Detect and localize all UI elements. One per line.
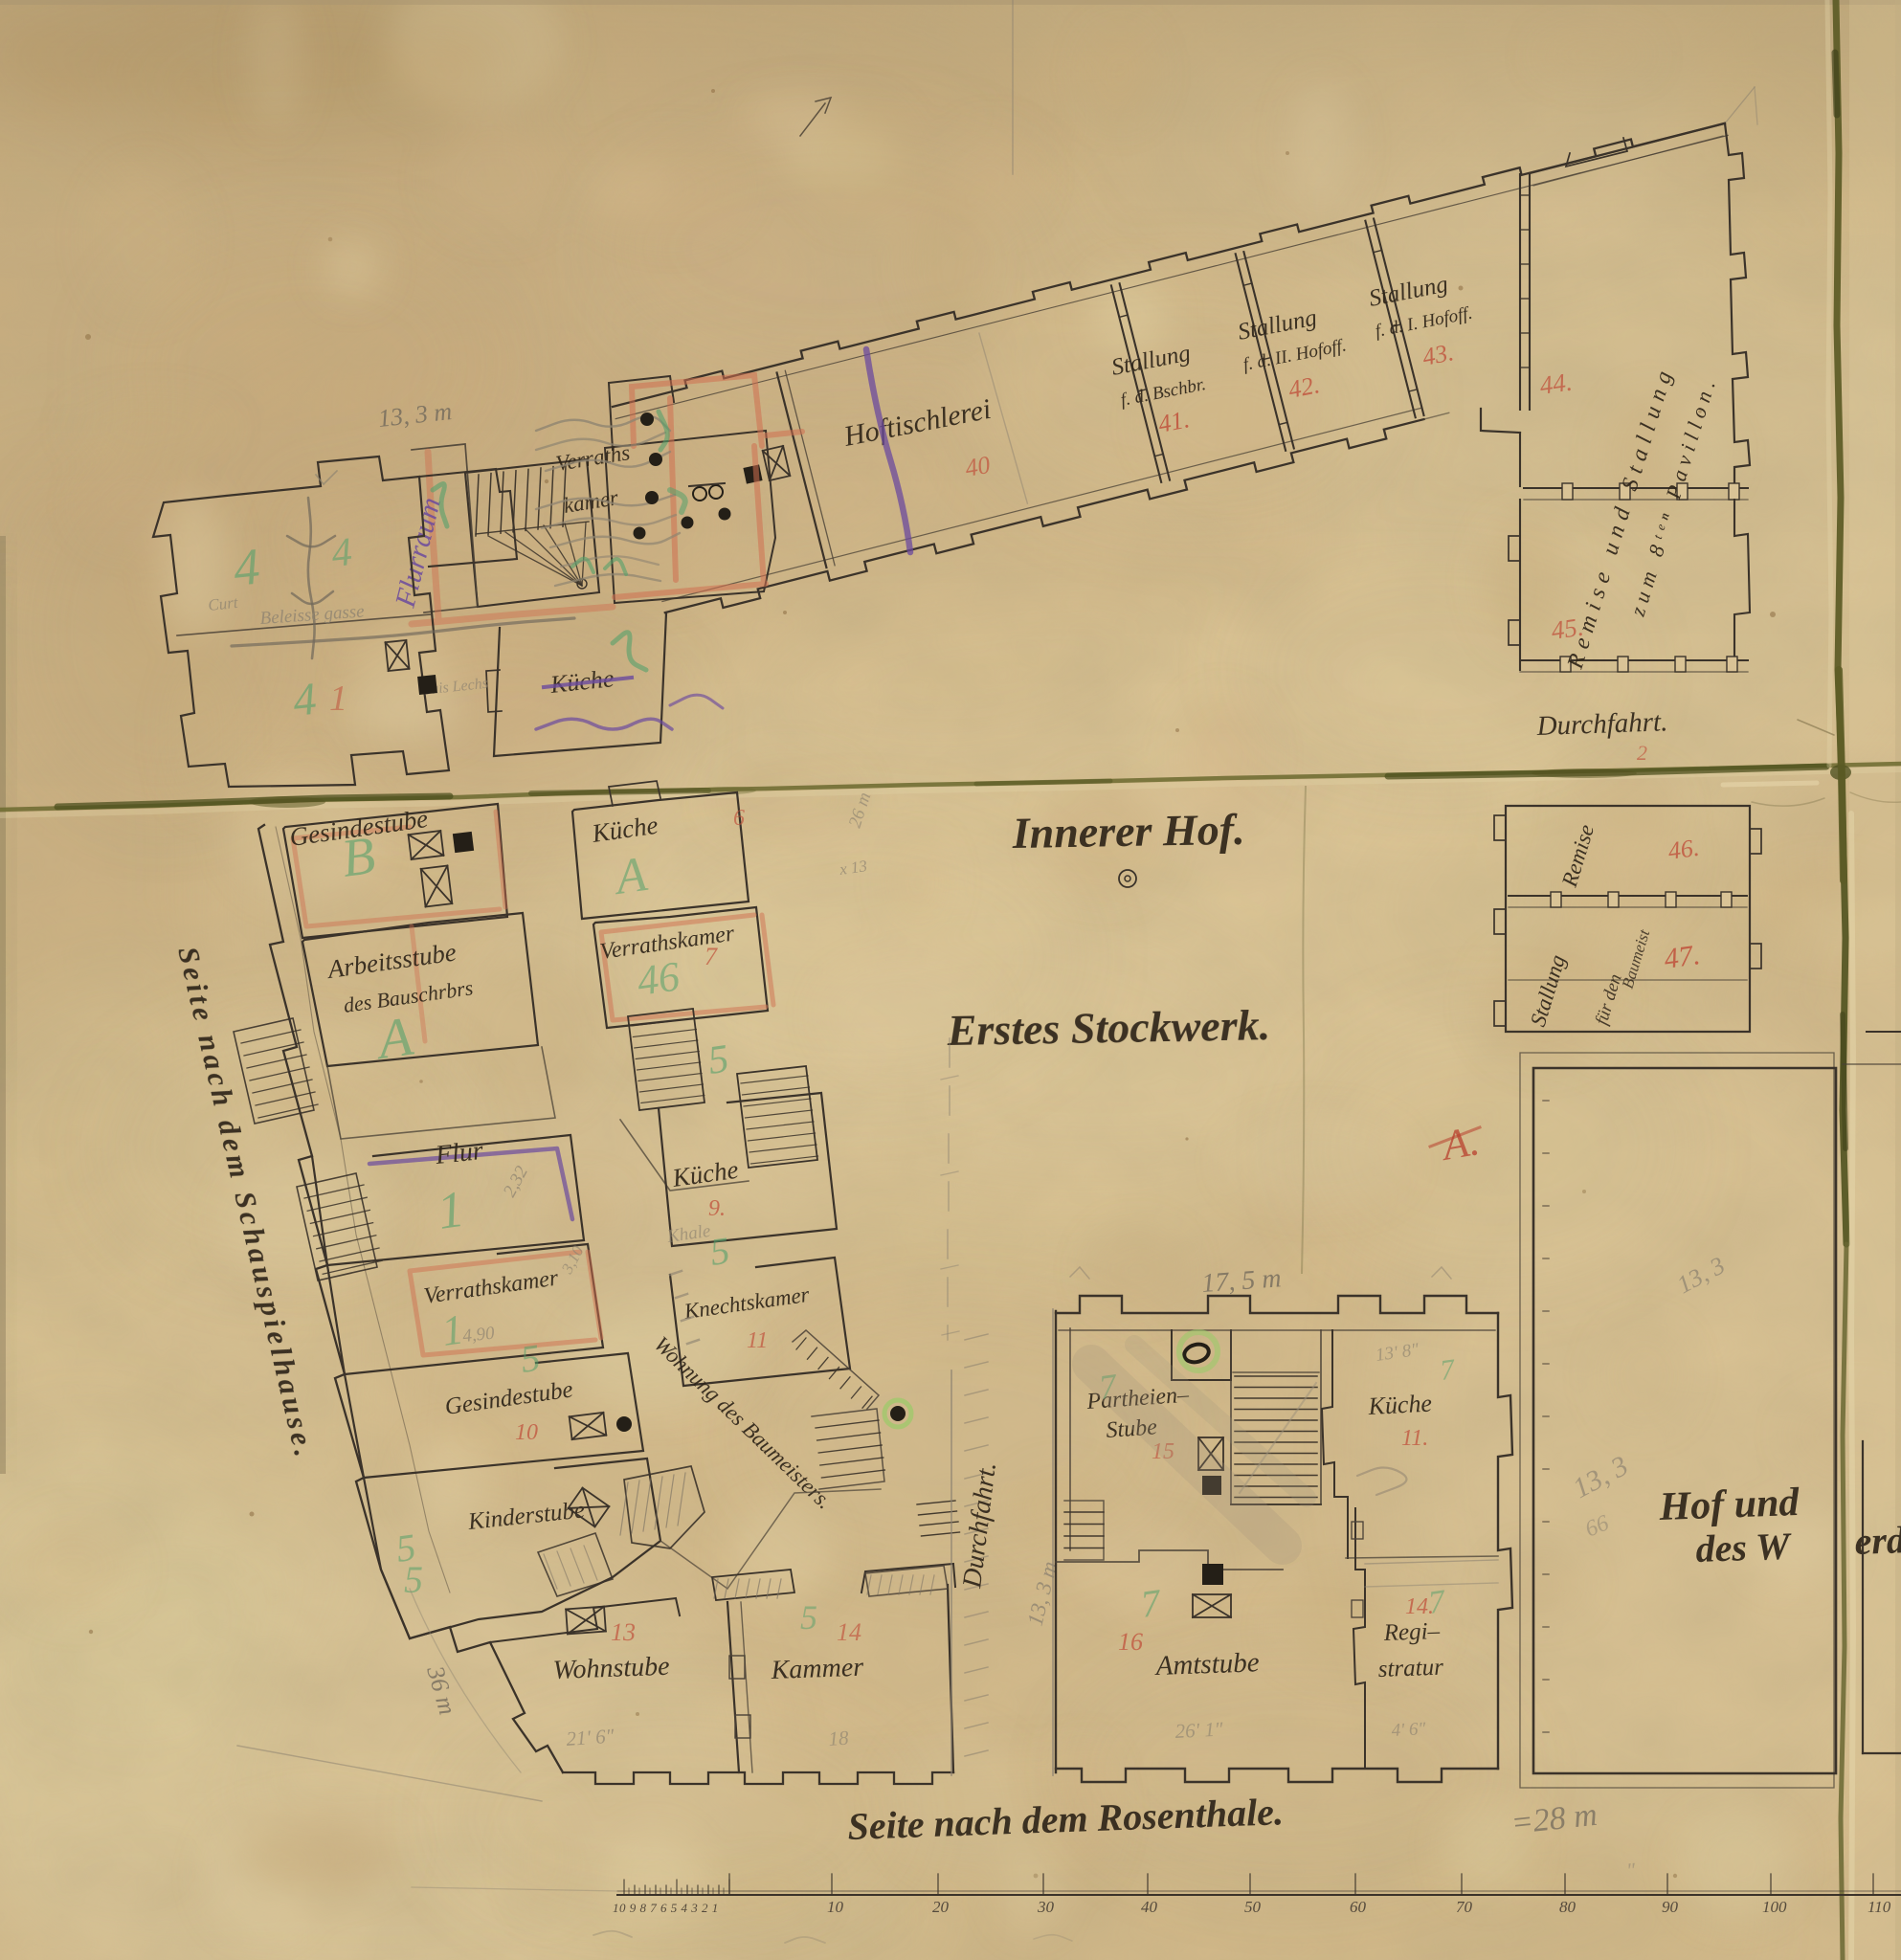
svg-text:80: 80 [1559, 1898, 1577, 1916]
svg-text:des W: des W [1695, 1525, 1793, 1570]
svg-text:Regi–: Regi– [1382, 1618, 1441, 1646]
svg-text:2: 2 [1637, 741, 1647, 765]
svg-text:5: 5 [404, 1558, 423, 1601]
svg-text:Flur: Flur [433, 1136, 484, 1170]
svg-text:26' 1″: 26' 1″ [1174, 1717, 1223, 1743]
svg-text:13: 13 [611, 1618, 636, 1646]
svg-text:47.: 47. [1662, 939, 1702, 975]
svg-text:Durchfahrt.: Durchfahrt. [1535, 706, 1668, 742]
svg-text:60: 60 [1350, 1898, 1367, 1916]
svg-text:Wohnstube: Wohnstube [552, 1652, 670, 1685]
svg-text:20: 20 [932, 1898, 950, 1916]
svg-text:Hof und: Hof und [1658, 1481, 1800, 1529]
svg-text:10: 10 [827, 1898, 844, 1916]
svg-text:10 9 8 7 6 5 4 3 2 1: 10 9 8 7 6 5 4 3 2 1 [613, 1901, 719, 1915]
svg-text:100: 100 [1762, 1898, 1787, 1916]
svg-text:1: 1 [329, 679, 347, 719]
svg-text:Amtstube: Amtstube [1153, 1647, 1260, 1682]
svg-text:5: 5 [800, 1598, 817, 1637]
svg-text:17, 5 m: 17, 5 m [1200, 1263, 1282, 1299]
svg-text:Innerer Hof.: Innerer Hof. [1011, 805, 1245, 857]
svg-text:18: 18 [828, 1726, 850, 1750]
svg-text:44.: 44. [1538, 367, 1575, 400]
svg-text:43.: 43. [1420, 338, 1456, 371]
svg-text:90: 90 [1662, 1898, 1679, 1916]
svg-text:50: 50 [1244, 1898, 1262, 1916]
svg-text:40: 40 [1141, 1898, 1158, 1916]
svg-text:6: 6 [733, 806, 745, 831]
svg-text:11: 11 [747, 1328, 768, 1353]
svg-text:7: 7 [704, 943, 718, 970]
svg-text:9.: 9. [708, 1196, 726, 1221]
svg-text:70: 70 [1456, 1898, 1473, 1916]
svg-text:10: 10 [515, 1420, 538, 1445]
svg-text:Küche: Küche [1367, 1390, 1433, 1420]
svg-text:stratur: stratur [1377, 1655, 1443, 1682]
svg-text:40: 40 [963, 451, 993, 482]
svg-text:16: 16 [1118, 1628, 1143, 1656]
svg-text:46.: 46. [1666, 834, 1701, 865]
svg-text:Erstes Stockwerk.: Erstes Stockwerk. [946, 1000, 1270, 1055]
svg-text:42.: 42. [1286, 370, 1322, 404]
svg-text:Kammer: Kammer [770, 1653, 864, 1685]
svg-text:4,90: 4,90 [461, 1324, 496, 1347]
svg-text:110: 110 [1867, 1898, 1891, 1916]
svg-text:30: 30 [1037, 1898, 1055, 1916]
svg-text:4' 6″: 4' 6″ [1391, 1719, 1427, 1741]
svg-text:Curt: Curt [207, 593, 239, 614]
svg-text:14: 14 [837, 1618, 861, 1646]
svg-text:45.: 45. [1550, 612, 1586, 645]
svg-text:11.: 11. [1401, 1426, 1428, 1451]
svg-text:erde: erde [1854, 1518, 1901, 1563]
svg-text:21' 6″: 21' 6″ [566, 1725, 615, 1750]
svg-text:46: 46 [635, 952, 682, 1005]
svg-text:41.: 41. [1156, 405, 1192, 438]
